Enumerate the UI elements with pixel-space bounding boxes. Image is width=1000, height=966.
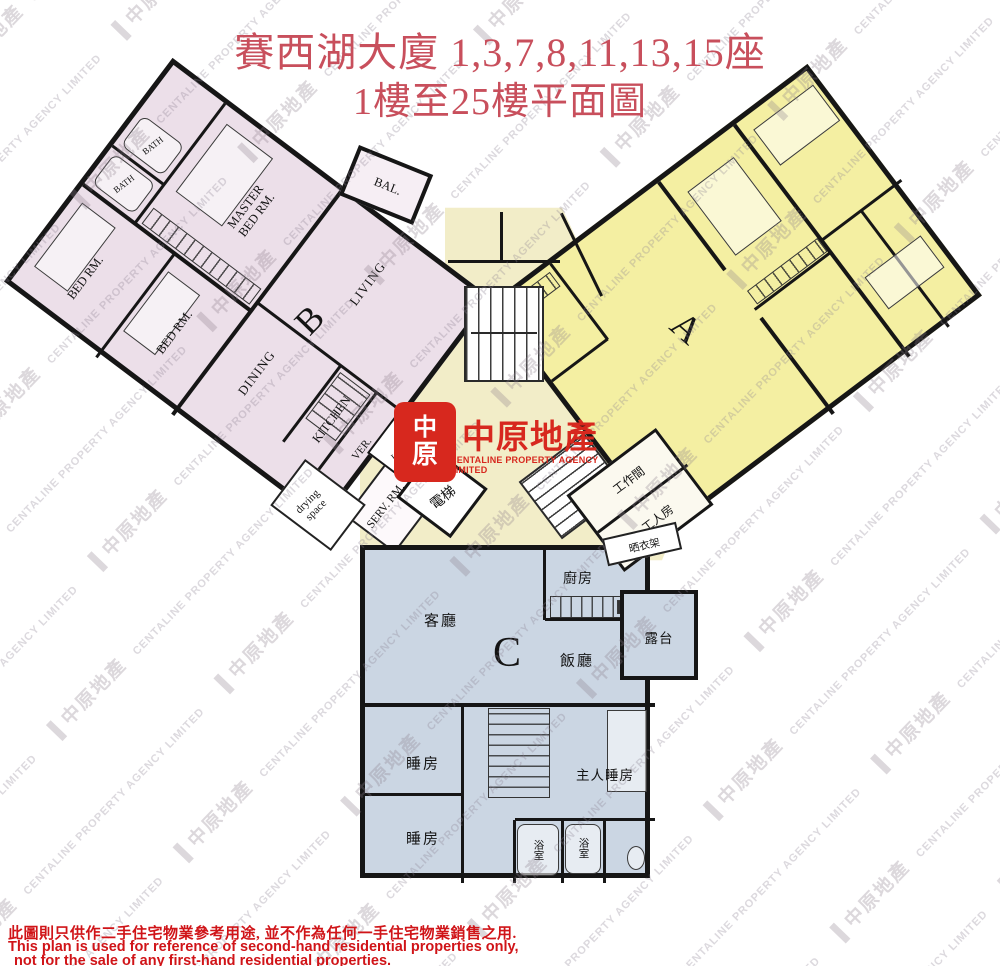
seal-char-bottom: 原	[412, 441, 438, 468]
room-label-drying-rack: 晒衣架	[627, 535, 661, 557]
room-label-living: 客廳	[424, 610, 458, 631]
bed	[865, 235, 945, 309]
room-label-workroom: 工作間	[609, 462, 648, 497]
wall	[365, 703, 655, 707]
logo-name-en: CENTALINE PROPERTY AGENCY LIMITED	[450, 455, 604, 475]
wall	[549, 263, 609, 341]
unit-c-wing: 客廳 C 飯廳 廚房 睡房 睡房 主人睡房 浴室 浴室	[360, 545, 650, 878]
room-label-balcony: BAL.	[372, 174, 404, 198]
centaline-seal-icon: 中 原	[394, 402, 456, 482]
room-label-bath: 浴室	[531, 840, 546, 861]
room-label-bedroom: 睡房	[406, 828, 440, 849]
wall	[551, 338, 609, 383]
room-label-living: LIVING	[346, 259, 389, 309]
floor-plan-page: BATH BATH MASTER BED RM. BED RM. BED RM.…	[0, 0, 1000, 966]
room-label-master-bedroom: 主人睡房	[576, 764, 634, 784]
wall	[515, 818, 655, 821]
wall	[500, 212, 503, 262]
seal-char-top: 中	[413, 416, 437, 441]
logo-name-zh: 中原地產	[462, 410, 598, 458]
room-label-dining: 飯廳	[560, 650, 594, 671]
centaline-logo: 中 原 中原地產 CENTALINE PROPERTY AGENCY LIMIT…	[394, 402, 604, 484]
staircase	[464, 286, 544, 382]
toilet	[627, 846, 645, 870]
wardrobe	[488, 708, 550, 798]
wardrobe	[747, 238, 828, 305]
room-label-kitchen: 廚房	[563, 568, 593, 588]
wall	[448, 260, 560, 263]
wall	[561, 820, 564, 883]
room-label-balcony: 露台	[645, 627, 674, 647]
unit-c-letter: C	[493, 629, 521, 677]
unit-a-letter: A	[661, 303, 711, 354]
lift-label-zh: 電梯	[425, 481, 459, 514]
room-label-bath: 浴室	[576, 838, 591, 859]
wall	[365, 793, 463, 796]
wall	[603, 820, 606, 883]
wall	[759, 317, 834, 415]
room-label-bedroom: 睡房	[406, 753, 440, 774]
wall	[543, 550, 546, 620]
page-title-line2: 1樓至25樓平面圖	[0, 70, 1000, 125]
unit-b-letter: B	[286, 297, 333, 343]
stair-rail	[471, 332, 538, 334]
wall	[513, 820, 516, 883]
disclaimer-en-line2: not for the sale of any first-hand resid…	[14, 953, 391, 966]
unit-c-balcony: 露台	[620, 590, 698, 680]
room-label-dining: DINING	[235, 347, 279, 398]
